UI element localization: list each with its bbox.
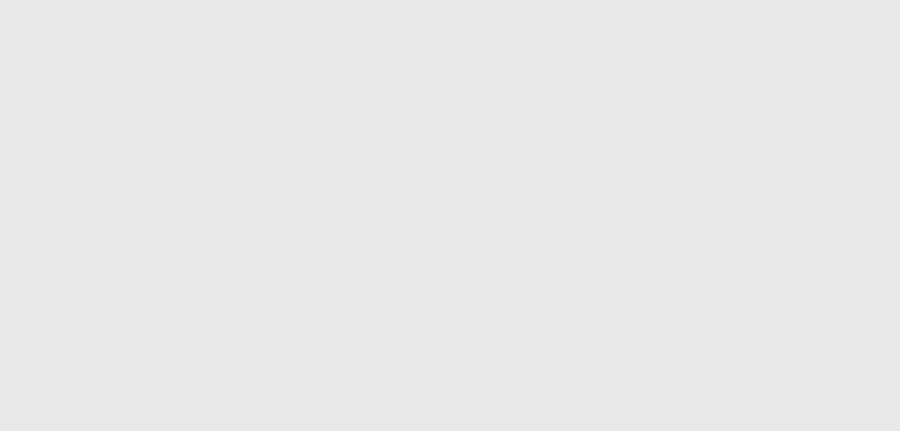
- cadastral-map-viewport[interactable]: [0, 0, 900, 431]
- cadastral-map-canvas[interactable]: [0, 0, 900, 431]
